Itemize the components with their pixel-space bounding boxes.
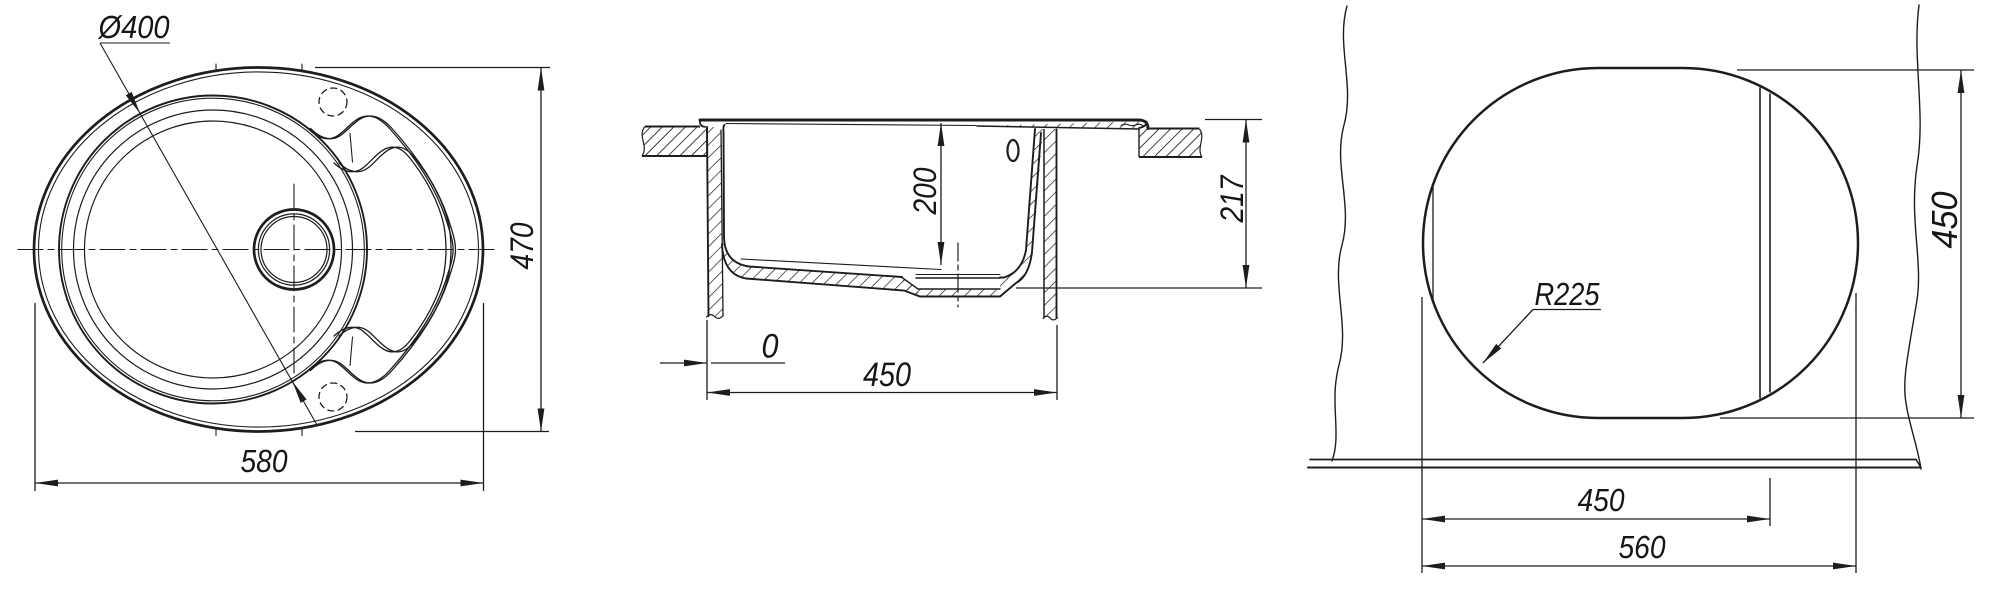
svg-text:450: 450 [1577, 482, 1624, 518]
svg-text:450: 450 [1924, 192, 1965, 249]
svg-text:Ø400: Ø400 [98, 9, 170, 45]
svg-text:217: 217 [1214, 174, 1250, 223]
svg-text:580: 580 [240, 443, 287, 479]
svg-text:560: 560 [1618, 529, 1665, 565]
svg-text:0: 0 [761, 327, 778, 365]
svg-text:200: 200 [907, 167, 943, 215]
svg-text:R225: R225 [1534, 276, 1599, 312]
svg-text:450: 450 [863, 356, 911, 394]
svg-text:470: 470 [504, 222, 540, 269]
